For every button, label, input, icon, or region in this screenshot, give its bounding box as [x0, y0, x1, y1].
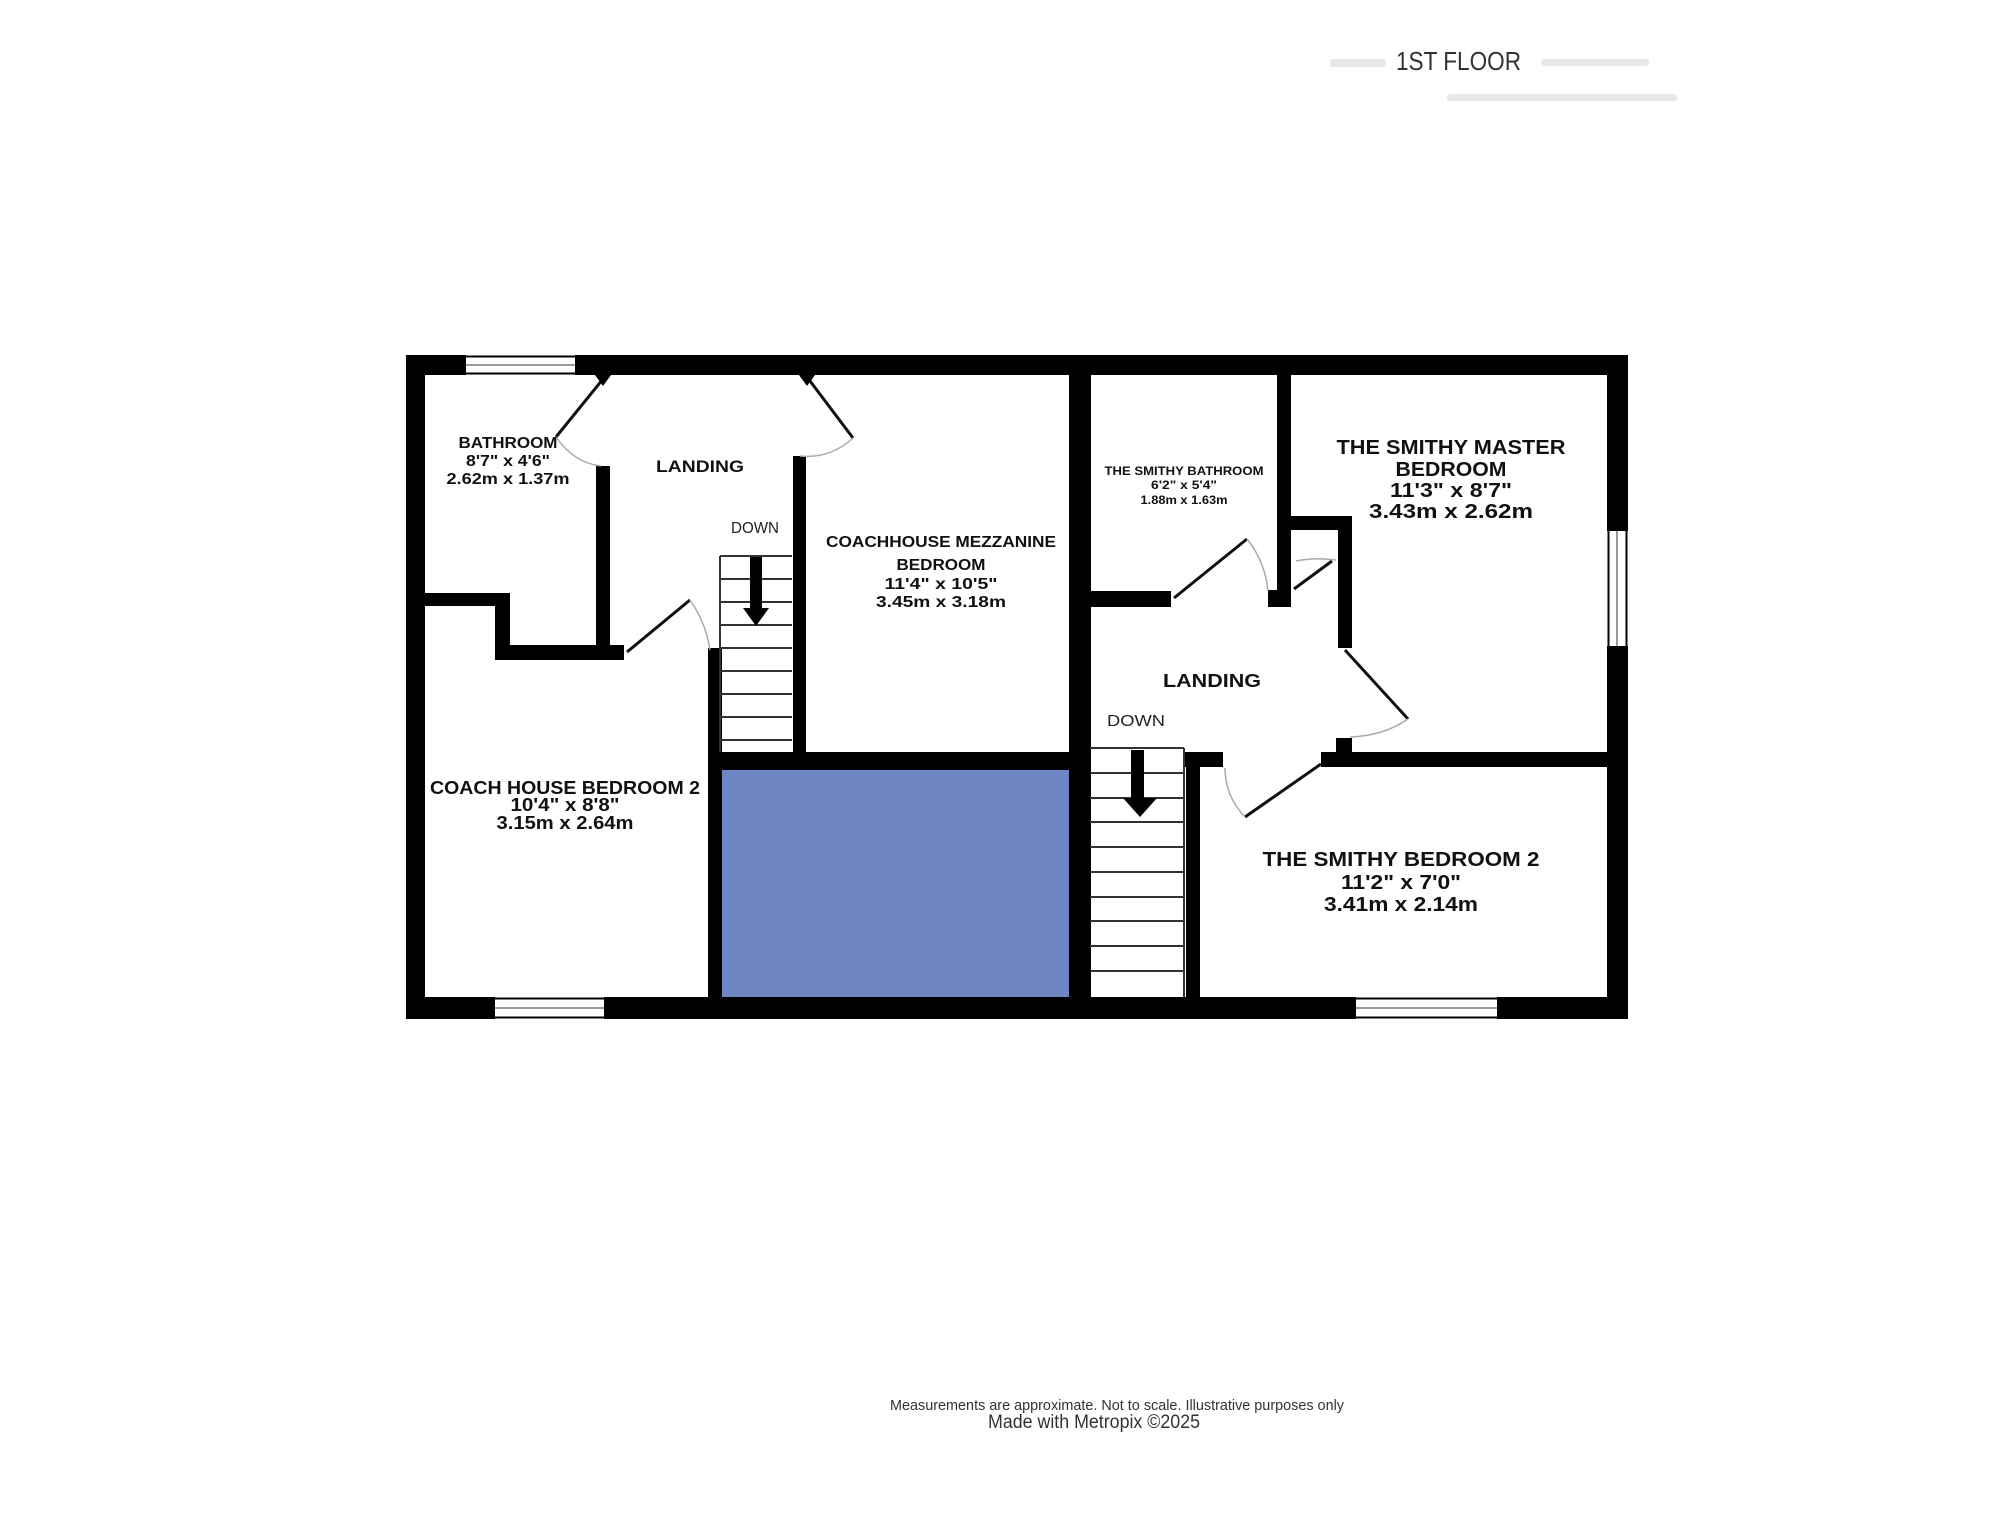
svg-text:DOWN: DOWN	[731, 520, 779, 537]
svg-text:11'4" x 10'5": 11'4" x 10'5"	[885, 576, 998, 593]
svg-text:3.41m x 2.14m: 3.41m x 2.14m	[1324, 894, 1478, 916]
svg-text:LANDING: LANDING	[1163, 671, 1261, 691]
svg-text:1ST FLOOR: 1ST FLOOR	[1396, 46, 1521, 76]
svg-text:COACHHOUSE MEZZANINE: COACHHOUSE MEZZANINE	[826, 534, 1056, 551]
svg-text:DOWN: DOWN	[1107, 713, 1165, 730]
svg-text:THE SMITHY BEDROOM 2: THE SMITHY BEDROOM 2	[1263, 849, 1540, 871]
svg-text:BEDROOM: BEDROOM	[897, 557, 986, 574]
svg-text:BEDROOM: BEDROOM	[1396, 459, 1507, 481]
svg-text:Made with Metropix ©2025: Made with Metropix ©2025	[988, 1412, 1200, 1433]
svg-text:LANDING: LANDING	[656, 457, 744, 476]
svg-text:THE SMITHY BATHROOM: THE SMITHY BATHROOM	[1105, 464, 1264, 478]
svg-text:11'3" x 8'7": 11'3" x 8'7"	[1390, 480, 1512, 502]
svg-text:10'4" x 8'8": 10'4" x 8'8"	[511, 795, 620, 815]
svg-text:8'7" x 4'6": 8'7" x 4'6"	[466, 453, 550, 470]
svg-text:THE SMITHY MASTER: THE SMITHY MASTER	[1337, 437, 1567, 459]
svg-text:1.88m x 1.63m: 1.88m x 1.63m	[1141, 493, 1228, 507]
svg-text:6'2" x 5'4": 6'2" x 5'4"	[1151, 478, 1217, 492]
svg-text:BATHROOM: BATHROOM	[459, 435, 558, 452]
svg-text:2.62m x 1.37m: 2.62m x 1.37m	[447, 471, 570, 488]
svg-text:11'2" x 7'0": 11'2" x 7'0"	[1341, 872, 1461, 894]
svg-text:3.43m x 2.62m: 3.43m x 2.62m	[1369, 501, 1533, 523]
svg-text:3.45m x 3.18m: 3.45m x 3.18m	[876, 594, 1006, 611]
svg-text:3.15m x 2.64m: 3.15m x 2.64m	[497, 813, 634, 833]
